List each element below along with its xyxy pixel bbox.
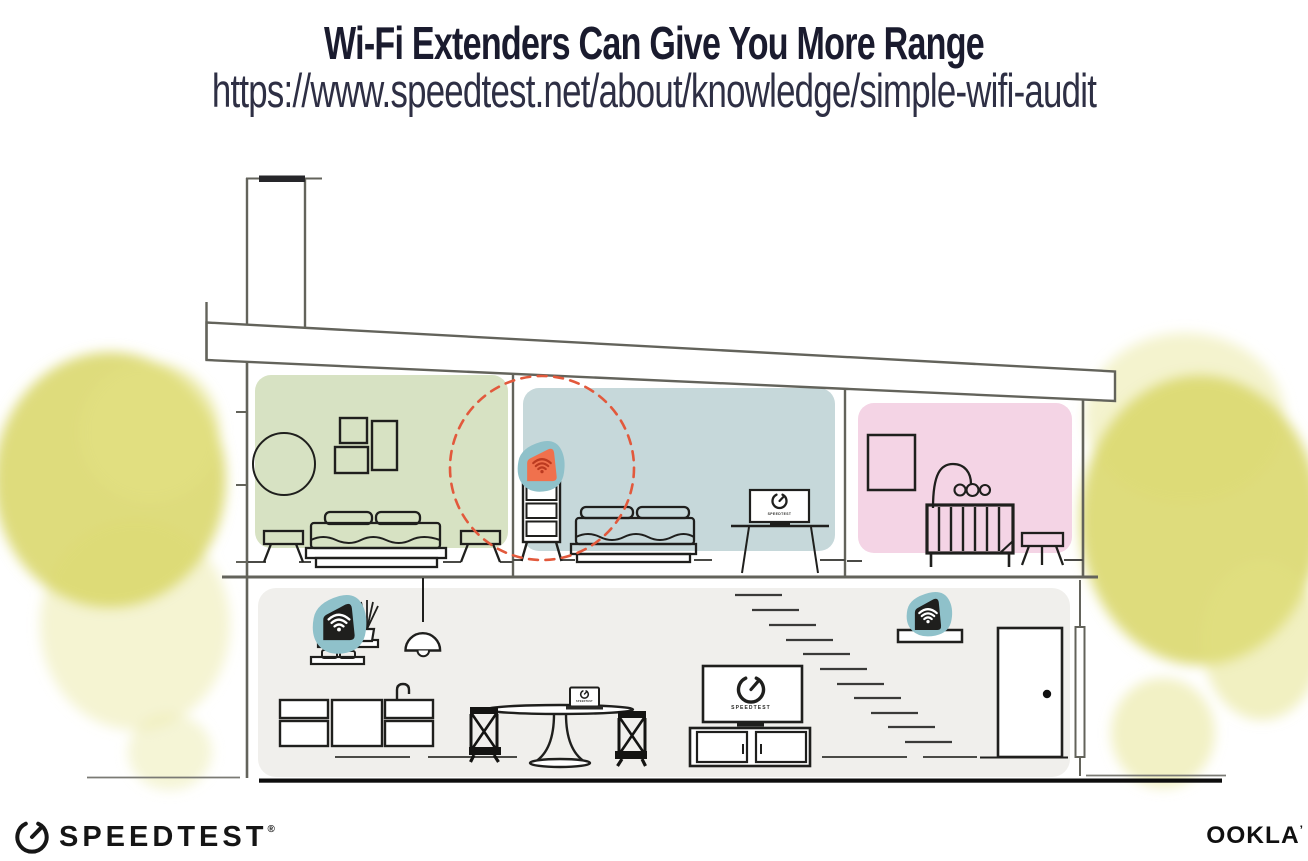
living-tv: SPEEDTEST [703,666,802,727]
trademark-tick: ’ [1300,823,1303,837]
registered-mark: ® [267,824,274,835]
downspout [1076,627,1085,757]
tv-screen [703,666,802,722]
house-illustration: SPEEDTEST [0,0,1308,861]
speedtest-gauge-icon [14,819,50,855]
foliage-left [0,352,230,790]
tv-screen-label: SPEEDTEST [768,512,792,516]
tv-screen [750,490,809,522]
laptop-screen-label: SPEEDTEST [576,700,593,703]
ookla-logo: OOKLA’ [1206,822,1303,850]
ground-slab [259,779,1222,783]
source-url: https://www.speedtest.net/about/knowledg… [170,63,1138,118]
chimney-cap [259,176,305,183]
speedtest-logo: SPEEDTEST® [14,819,275,855]
pink-nursery-bg [858,403,1072,553]
speedtest-wordmark: SPEEDTEST® [59,821,275,854]
door-knob [1043,690,1051,698]
page-title: Wi-Fi Extenders Can Give You More Range [170,16,1138,70]
laptop: SPEEDTEST [566,688,603,710]
shelf [311,657,364,664]
chimney [246,176,322,332]
media-cabinet [690,728,810,766]
tv-screen-label: SPEEDTEST [731,705,771,711]
